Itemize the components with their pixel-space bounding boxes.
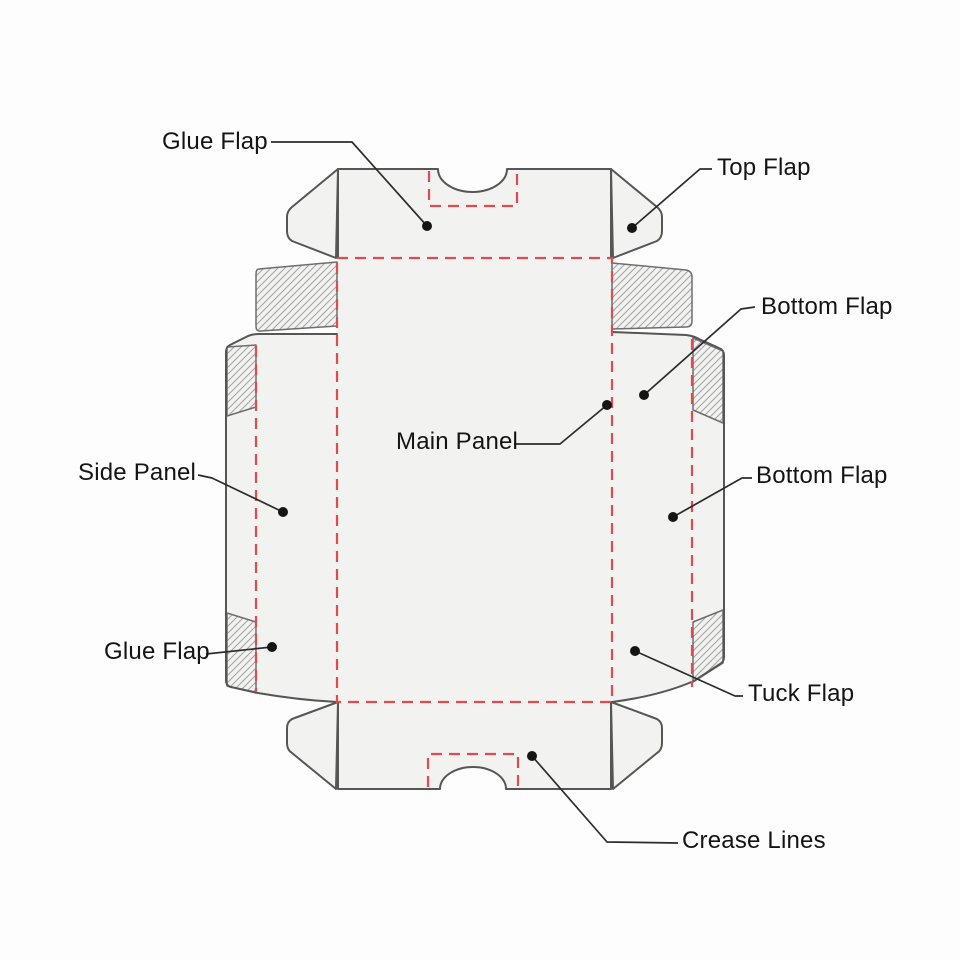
label-glue-flap-bottom: Glue Flap <box>104 640 210 664</box>
bottom-left-wing-flap <box>287 702 338 789</box>
label-main-panel: Main Panel <box>396 430 518 454</box>
label-tuck-flap: Tuck Flap <box>748 682 854 706</box>
top-left-wing-flap <box>287 169 338 258</box>
label-side-panel: Side Panel <box>78 461 196 485</box>
glue-strip-left-top <box>227 345 256 416</box>
leader-dot-side-panel <box>278 507 288 517</box>
label-top-flap: Top Flap <box>717 156 811 180</box>
dieline-diagram: Glue Flap Top Flap Bottom Flap Main Pane… <box>0 0 960 960</box>
glue-strip-left-bottom <box>227 613 256 693</box>
leader-dot-crease-lines <box>527 751 537 761</box>
main-panel-fill <box>337 258 612 702</box>
glue-area-upper-left <box>256 262 337 331</box>
leader-dot-bottom-flap-upper <box>639 390 649 400</box>
top-right-wing-flap <box>611 169 662 258</box>
bottom-flap-fill <box>338 702 611 789</box>
glue-strip-right-top <box>693 338 723 423</box>
label-bottom-flap-lower: Bottom Flap <box>756 464 888 488</box>
label-glue-flap-top: Glue Flap <box>162 130 268 154</box>
leader-dot-glue-flap-bottom <box>267 642 277 652</box>
leader-dot-tuck-flap <box>630 646 640 656</box>
leader-dot-top-flap <box>627 223 637 233</box>
bottom-right-wing-flap <box>611 702 662 789</box>
glue-area-upper-right <box>612 263 692 329</box>
top-flap-fill <box>338 169 611 258</box>
leader-dot-main-panel <box>602 400 612 410</box>
label-bottom-flap-upper: Bottom Flap <box>761 295 893 319</box>
leader-dot-bottom-flap-lower <box>668 512 678 522</box>
leader-dot-glue-flap-top <box>422 221 432 231</box>
label-crease-lines: Crease Lines <box>682 829 826 853</box>
